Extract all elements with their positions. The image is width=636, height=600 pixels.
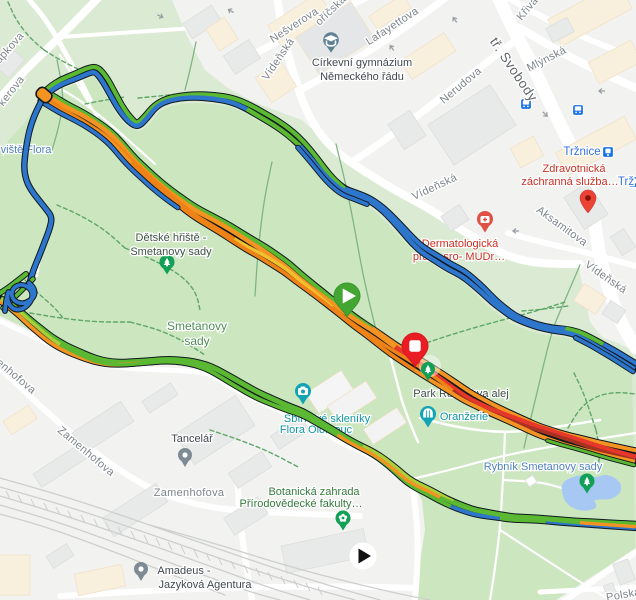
svg-text:Tancelář: Tancelář bbox=[171, 433, 213, 445]
svg-text:Amadeus -: Amadeus - bbox=[157, 565, 211, 577]
svg-text:Církevní gymnázium: Církevní gymnázium bbox=[312, 57, 412, 69]
svg-text:Jazyková Agentura: Jazyková Agentura bbox=[159, 579, 253, 591]
svg-text:Rybník Smetanovy sady: Rybník Smetanovy sady bbox=[484, 461, 603, 473]
svg-text:sady: sady bbox=[184, 334, 209, 348]
svg-text:Oranžerie: Oranžerie bbox=[440, 411, 488, 423]
svg-text:záchranná služba…: záchranná služba… bbox=[521, 176, 618, 188]
svg-text:Německého řádu: Německého řádu bbox=[320, 71, 404, 83]
svg-text:Zdravotnická: Zdravotnická bbox=[543, 163, 607, 175]
svg-text:Dětské hřiště -: Dětské hřiště - bbox=[136, 232, 207, 244]
svg-text:Smetanovy: Smetanovy bbox=[167, 319, 227, 333]
svg-text:Přírodovědecké fakulty…: Přírodovědecké fakulty… bbox=[240, 498, 363, 510]
svg-text:Botanická zahrada: Botanická zahrada bbox=[268, 486, 360, 498]
svg-text:Dermatologická: Dermatologická bbox=[422, 238, 499, 250]
svg-text:Trž: Trž bbox=[618, 176, 634, 188]
svg-text:Smetanovy sady: Smetanovy sady bbox=[130, 246, 212, 258]
svg-text:Zamenhofova: Zamenhofova bbox=[154, 487, 225, 499]
svg-text:Tržnice: Tržnice bbox=[563, 146, 600, 158]
